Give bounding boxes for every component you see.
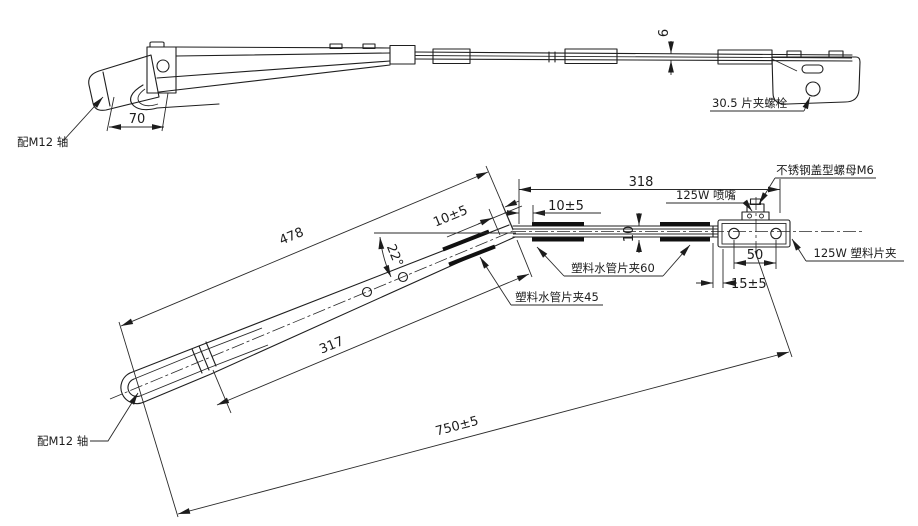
hook-end bbox=[121, 225, 515, 404]
shaft-label-top: 配M12 轴 bbox=[17, 135, 68, 149]
callout-shaft-bottom: 配M12 轴 bbox=[37, 393, 138, 448]
dim-50-label: 50 bbox=[747, 248, 764, 263]
dimension-clip-offset-incline: 10±5 bbox=[431, 201, 522, 237]
ferrule-ticks bbox=[192, 342, 216, 373]
centerline-incline bbox=[110, 231, 513, 399]
dim-6-label: 6 bbox=[657, 29, 672, 37]
leader-line bbox=[792, 239, 806, 261]
callout-shaft-top: 配M12 轴 bbox=[17, 97, 103, 149]
dimension-lower-arm: 317 bbox=[213, 240, 532, 413]
dim-15pm5-label: 15±5 bbox=[731, 277, 767, 292]
plastic-clip-label: 125W 塑料片夹 bbox=[814, 246, 897, 260]
dim-478-label: 478 bbox=[277, 225, 306, 248]
pipe-clip-45-band-top bbox=[443, 232, 489, 250]
leader-line bbox=[759, 178, 775, 204]
wiper-arm-drawing: 6 70 配M12 轴 30.5 片夹螺栓 bbox=[0, 0, 918, 526]
spring-hook-side bbox=[131, 85, 219, 110]
plan-view: 478 317 750±5 22° 318 bbox=[37, 163, 904, 517]
leader-line bbox=[480, 257, 511, 305]
pipe-clip-45-band-bottom bbox=[449, 247, 495, 265]
dimension-head-width: 70 bbox=[107, 93, 168, 131]
arm-head-side bbox=[89, 42, 219, 110]
pipe-clip-45-label: 塑料水管片夹45 bbox=[515, 290, 599, 304]
dim-10-label: 10 bbox=[622, 226, 637, 243]
ferrule-side bbox=[390, 46, 415, 65]
pipe-clip-60-label: 塑料水管片夹60 bbox=[571, 261, 655, 275]
dim-10pm5-incline-label: 10±5 bbox=[431, 203, 470, 230]
dim-317-label: 317 bbox=[317, 334, 346, 357]
dim-10pm5-straight-label: 10±5 bbox=[548, 199, 584, 214]
arm-hole-1 bbox=[363, 288, 372, 297]
callout-plastic-clip: 125W 塑料片夹 bbox=[792, 239, 904, 261]
dimension-bend-angle: 22° bbox=[374, 233, 516, 277]
callout-nozzle: 125W 喷嘴 bbox=[666, 188, 752, 211]
pivot-hole bbox=[157, 60, 169, 72]
clip-bolt-hole bbox=[806, 82, 820, 96]
bracket-hole-1 bbox=[729, 228, 739, 238]
leader-line bbox=[537, 247, 564, 276]
dim-70-label: 70 bbox=[129, 112, 146, 127]
bolt-label: 30.5 片夹螺栓 bbox=[712, 96, 788, 110]
arm-rod-side bbox=[157, 44, 852, 92]
leader-line bbox=[663, 245, 690, 276]
leader-line bbox=[804, 97, 810, 111]
bracket-slot bbox=[802, 65, 823, 73]
leader-line bbox=[63, 97, 103, 141]
side-view: 6 70 配M12 轴 30.5 片夹螺栓 bbox=[17, 29, 860, 149]
callout-pipe-clip-60: 塑料水管片夹60 bbox=[537, 245, 690, 276]
technical-drawing-canvas: 6 70 配M12 轴 30.5 片夹螺栓 bbox=[0, 0, 918, 526]
plastic-clip-bracket bbox=[718, 199, 790, 247]
shaft-label-bottom: 配M12 轴 bbox=[37, 434, 88, 448]
callout-cap-nut: 不锈钢盖型螺母M6 bbox=[759, 163, 876, 204]
leader-line bbox=[90, 393, 138, 441]
dimension-rod-width: 10 bbox=[622, 213, 639, 253]
dimension-rod-height: 6 bbox=[657, 29, 672, 75]
cap-nut-label: 不锈钢盖型螺母M6 bbox=[776, 163, 874, 177]
nozzle-label: 125W 喷嘴 bbox=[676, 188, 736, 202]
dim-318-label: 318 bbox=[629, 175, 654, 190]
bracket-hole-2 bbox=[771, 228, 781, 238]
washer-nozzle bbox=[742, 199, 769, 220]
